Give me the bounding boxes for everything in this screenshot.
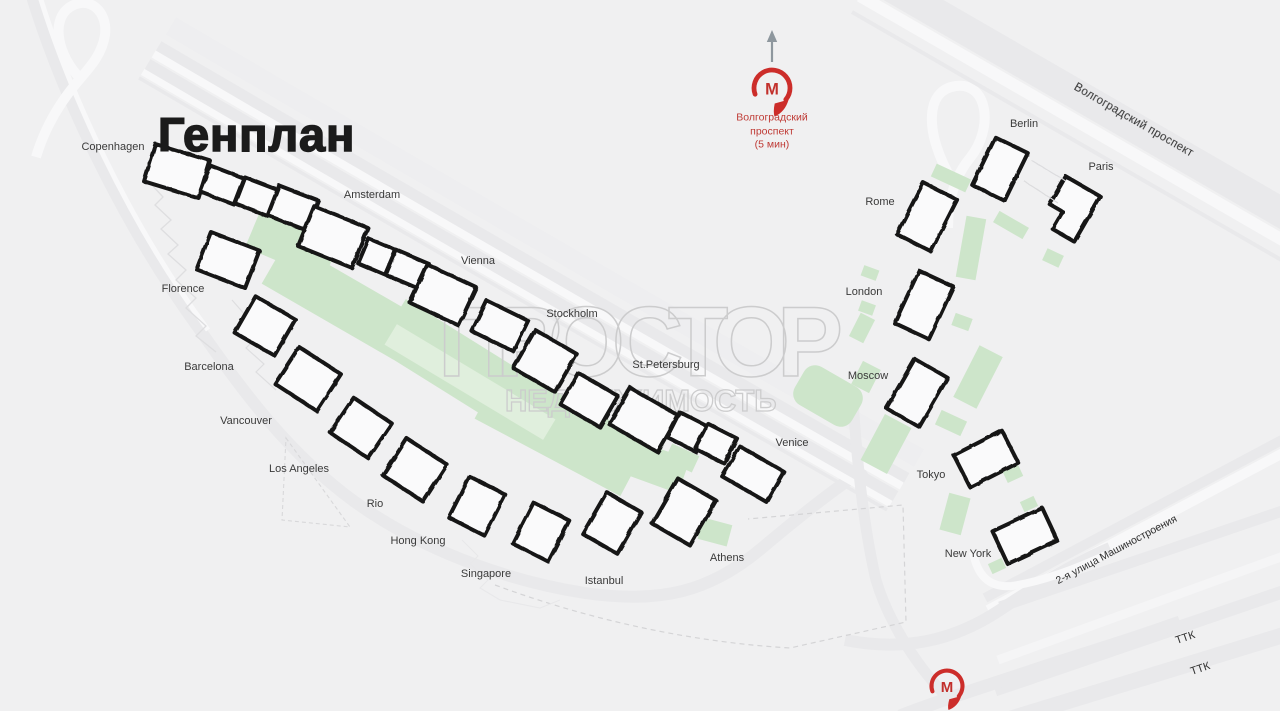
svg-text:М: М <box>765 81 779 99</box>
svg-text:М: М <box>941 679 954 696</box>
svg-text:Amsterdam: Amsterdam <box>344 189 400 201</box>
svg-text:Волгоградский: Волгоградский <box>736 112 808 124</box>
svg-text:Singapore: Singapore <box>461 568 511 580</box>
svg-text:Paris: Paris <box>1088 161 1114 173</box>
svg-text:Hong Kong: Hong Kong <box>390 535 445 547</box>
svg-text:Florence: Florence <box>162 283 205 295</box>
svg-text:Stockholm: Stockholm <box>546 308 597 320</box>
svg-text:Генплан: Генплан <box>158 108 355 161</box>
svg-text:New York: New York <box>945 548 992 560</box>
svg-text:Berlin: Berlin <box>1010 118 1038 130</box>
svg-text:проспект: проспект <box>750 126 794 138</box>
svg-text:Athens: Athens <box>710 552 745 564</box>
svg-text:Rio: Rio <box>367 498 384 510</box>
svg-text:Moscow: Moscow <box>848 370 888 382</box>
svg-text:St.Petersburg: St.Petersburg <box>632 359 699 371</box>
svg-text:Vancouver: Vancouver <box>220 415 272 427</box>
svg-text:London: London <box>846 286 883 298</box>
svg-text:Tokyo: Tokyo <box>917 469 946 481</box>
svg-text:Venice: Venice <box>775 437 808 449</box>
svg-text:Istanbul: Istanbul <box>585 575 624 587</box>
svg-text:Vienna: Vienna <box>461 255 496 267</box>
svg-text:Copenhagen: Copenhagen <box>81 141 144 153</box>
svg-text:(5 мин): (5 мин) <box>755 139 790 151</box>
svg-text:Rome: Rome <box>865 196 894 208</box>
svg-text:Barcelona: Barcelona <box>184 361 234 373</box>
svg-text:Los Angeles: Los Angeles <box>269 463 329 475</box>
